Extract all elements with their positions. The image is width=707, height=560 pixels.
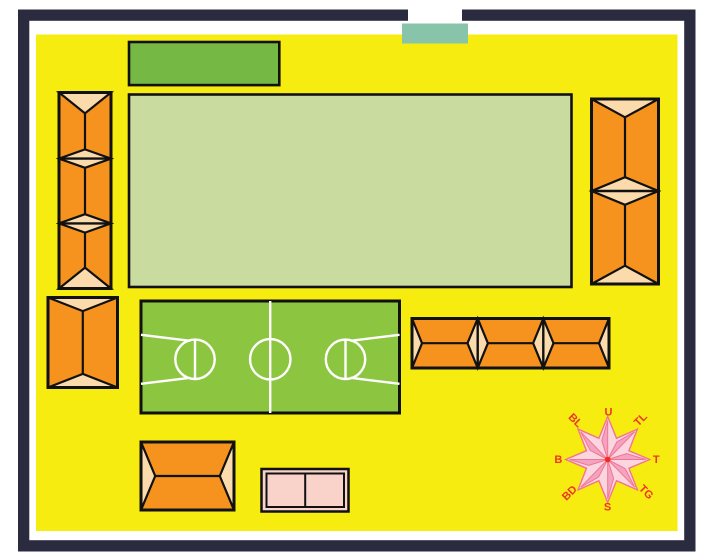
svg-text:S: S [604, 502, 611, 514]
svg-text:B: B [554, 454, 562, 466]
svg-text:U: U [605, 406, 613, 418]
svg-text:T: T [653, 454, 660, 466]
